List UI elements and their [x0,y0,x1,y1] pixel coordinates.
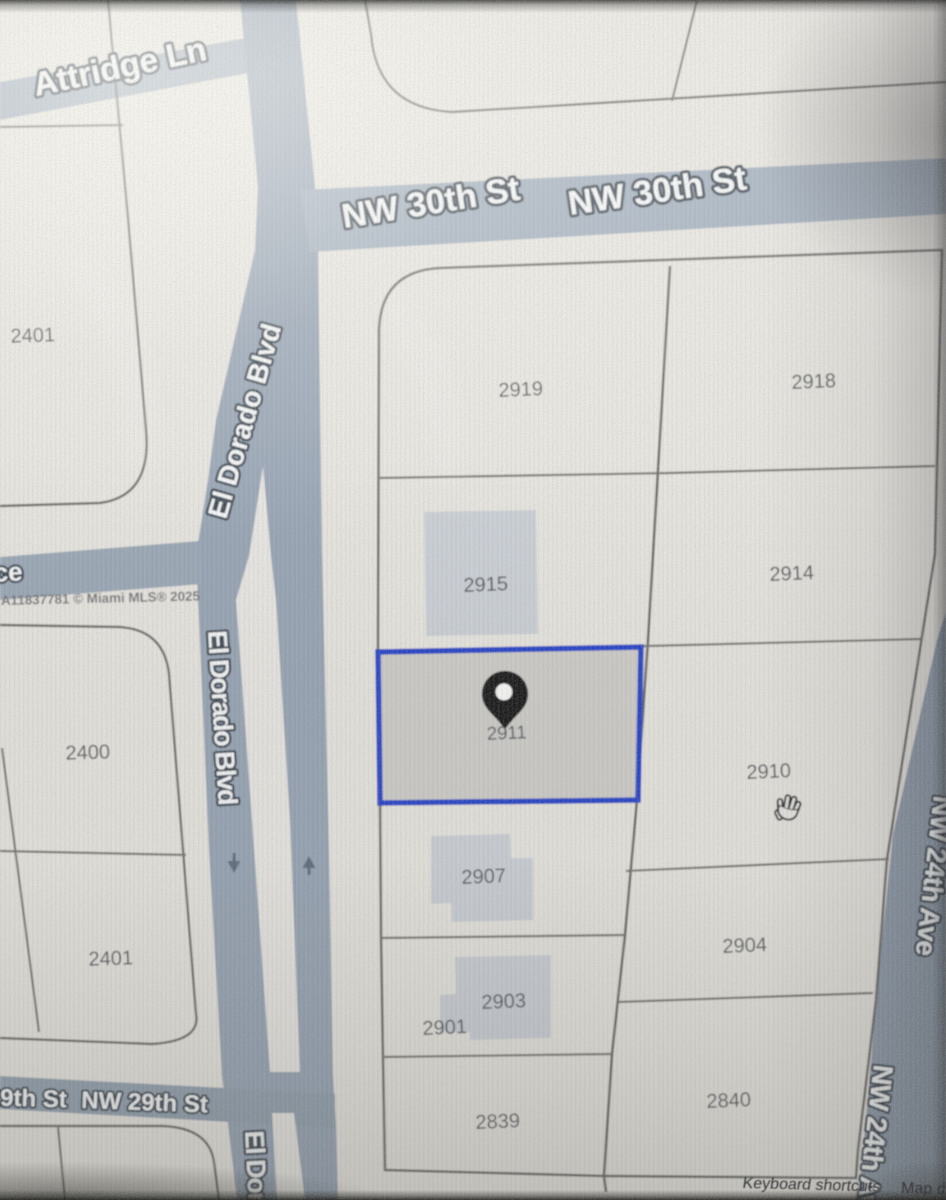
svg-text:2918: 2918 [791,370,836,394]
svg-text:Terrace: Terrace [0,556,23,591]
svg-text:2901: 2901 [422,1016,467,1040]
svg-text:2919: 2919 [498,378,543,402]
svg-text:2903: 2903 [481,990,526,1014]
svg-text:2839: 2839 [475,1110,520,1134]
svg-text:2915: 2915 [463,573,508,597]
svg-text:NW 29th St: NW 29th St [81,1087,209,1118]
svg-text:2401: 2401 [10,324,55,348]
svg-text:NW 29th St: NW 29th St [0,1083,67,1113]
svg-text:2840: 2840 [706,1089,751,1113]
svg-text:2400: 2400 [65,741,110,765]
svg-text:2401: 2401 [88,947,133,971]
svg-text:2914: 2914 [769,562,814,586]
svg-text:2907: 2907 [461,865,506,889]
svg-text:2911: 2911 [486,721,527,744]
svg-text:2904: 2904 [722,934,767,958]
svg-text:2910: 2910 [746,760,791,784]
